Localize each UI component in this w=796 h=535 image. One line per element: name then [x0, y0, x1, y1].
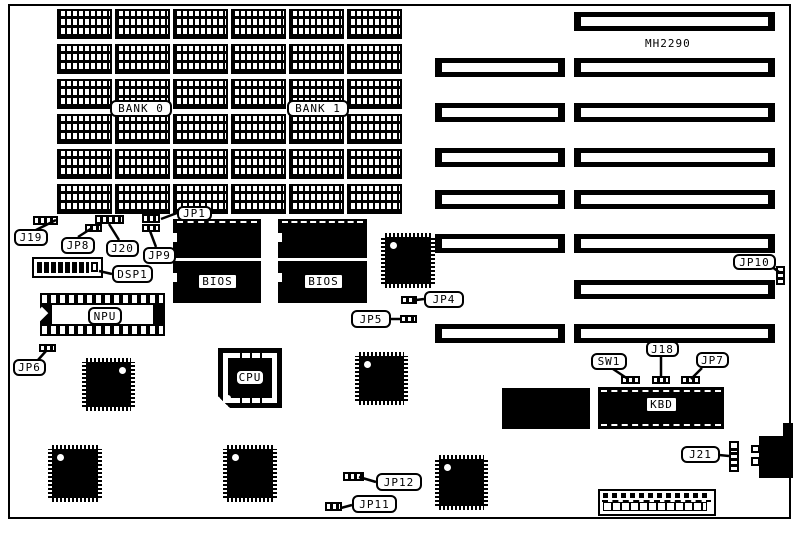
aux-chip — [502, 388, 590, 429]
bios2-label: BIOS — [303, 273, 344, 290]
jp9-label: JP9 — [143, 247, 176, 264]
sw1-label: SW1 — [591, 353, 627, 370]
qfp-chip-2 — [355, 352, 408, 405]
jp11-label: JP11 — [352, 495, 397, 513]
power-connector-pins — [603, 493, 711, 498]
memory-chip — [231, 9, 286, 39]
memory-chip — [289, 149, 344, 179]
memory-chip — [57, 114, 112, 144]
j20-jumper — [95, 215, 124, 224]
jp1-label: JP1 — [177, 206, 212, 221]
expansion-slot-long — [574, 190, 775, 209]
sw1-jumper — [621, 376, 640, 384]
j21-connector — [729, 449, 739, 472]
memory-chip — [115, 9, 170, 39]
jp4-label: JP4 — [424, 291, 464, 308]
memory-chip — [289, 114, 344, 144]
j20-label: J20 — [106, 240, 139, 257]
jp11-jumper — [325, 502, 342, 511]
memory-chip — [115, 44, 170, 74]
memory-chip — [289, 184, 344, 214]
jp5-label: JP5 — [351, 310, 391, 328]
dsp1-label: DSP1 — [112, 265, 153, 283]
dsp1-socket-empty-pin — [91, 262, 98, 272]
memory-chip — [115, 114, 170, 144]
expansion-slot-long — [574, 148, 775, 167]
pin1-notch — [278, 233, 282, 242]
din-tab-1 — [751, 445, 760, 453]
cpu-pin1-dot — [225, 395, 231, 401]
memory-chip — [347, 114, 402, 144]
qfp-pin1-dot — [232, 454, 239, 461]
jp8-jumper — [85, 224, 102, 232]
qfp-pin1-dot — [364, 361, 371, 368]
qfp-chip-6 — [435, 455, 488, 510]
bios-rom-socket-1 — [173, 219, 261, 258]
keyboard-din-connector — [759, 436, 793, 478]
memory-chip — [173, 114, 228, 144]
bank0-label: BANK 0 — [110, 100, 172, 117]
dsp1-socket-pins — [37, 262, 89, 273]
npu-pins-top — [42, 295, 163, 303]
j21-pin1-pad — [729, 441, 739, 450]
memory-chip — [57, 184, 112, 214]
memory-chip — [57, 44, 112, 74]
j18-jumper — [652, 376, 670, 384]
jp4-jumper — [401, 296, 417, 304]
memory-chip — [347, 9, 402, 39]
j19-label: J19 — [14, 229, 48, 246]
memory-chip — [231, 44, 286, 74]
jp6-jumper — [39, 344, 56, 352]
memory-chip — [231, 79, 286, 109]
expansion-slot-long — [574, 58, 775, 77]
expansion-slot-short — [435, 58, 565, 77]
memory-chip — [347, 79, 402, 109]
bios-rom-socket-2 — [278, 219, 367, 258]
memory-chip — [115, 184, 170, 214]
cpu-ticks-bottom — [232, 398, 268, 403]
pin1-notch — [173, 273, 177, 282]
socket-dash — [177, 221, 257, 223]
qfp-chip-5 — [223, 445, 277, 502]
pin1-notch — [173, 233, 177, 242]
jp1-jumper-a — [142, 214, 160, 223]
jp6-label: JP6 — [13, 359, 46, 376]
expansion-slot-long — [574, 280, 775, 299]
cpu-label: CPU — [235, 369, 265, 386]
bios1-label: BIOS — [197, 273, 238, 290]
npu-pins-bottom — [42, 326, 163, 334]
npu-label: NPU — [88, 307, 122, 325]
pin1-notch — [278, 273, 282, 282]
keyboard-din-step — [783, 423, 793, 437]
bank1-label: BANK 1 — [287, 100, 349, 117]
j18-label: J18 — [646, 341, 679, 357]
kbd-label: KBD — [645, 396, 678, 413]
memory-chip — [231, 149, 286, 179]
jp1-jumper-b — [142, 224, 160, 232]
memory-chip — [289, 9, 344, 39]
power-connector — [598, 489, 716, 516]
expansion-slot-short — [435, 190, 565, 209]
jp10-label: JP10 — [733, 254, 776, 270]
connector-notch — [711, 499, 714, 505]
motherboard-diagram: MH2290 BANK 0 BANK 1 BIOS BIOS DSP1 NPU — [0, 0, 796, 535]
j21-label: J21 — [681, 446, 720, 463]
memory-chip — [347, 149, 402, 179]
jp7-jumper — [681, 376, 700, 384]
memory-chip — [231, 184, 286, 214]
qfp-pin1-dot — [119, 367, 126, 374]
model-number-text: MH2290 — [645, 37, 691, 50]
expansion-slot-short — [435, 234, 565, 253]
socket-dash — [282, 221, 363, 223]
expansion-slot-long — [574, 324, 775, 343]
expansion-slot-short — [435, 148, 565, 167]
memory-chip — [57, 79, 112, 109]
power-connector-terminals — [603, 502, 707, 511]
jp10-jumper — [776, 266, 785, 285]
memory-chip — [173, 44, 228, 74]
expansion-slot-short — [435, 103, 565, 122]
jp12-label: JP12 — [376, 473, 422, 491]
memory-chip — [57, 9, 112, 39]
j19-jumper — [33, 216, 58, 225]
memory-chip — [115, 149, 170, 179]
memory-chip — [57, 149, 112, 179]
memory-chip — [289, 44, 344, 74]
jp12-jumper — [343, 472, 364, 481]
qfp-chip-3 — [381, 233, 435, 288]
memory-chip — [347, 184, 402, 214]
memory-chip — [173, 149, 228, 179]
jp7-label: JP7 — [696, 352, 729, 368]
expansion-slot-long — [574, 103, 775, 122]
jp5-jumper — [400, 315, 417, 323]
qfp-chip-4 — [48, 445, 102, 502]
memory-chip — [347, 44, 402, 74]
qfp-pin1-dot — [57, 454, 64, 461]
jp8-label: JP8 — [61, 237, 95, 254]
expansion-slot-short — [435, 324, 565, 343]
memory-chip — [173, 79, 228, 109]
din-tab-2 — [751, 457, 760, 466]
expansion-slot-long — [574, 234, 775, 253]
dsp1-socket — [32, 257, 103, 278]
qfp-pin1-dot — [444, 464, 451, 471]
socket-dash — [601, 424, 721, 426]
memory-chip — [231, 114, 286, 144]
qfp-chip-1 — [82, 358, 135, 411]
qfp-pin1-dot — [390, 242, 397, 249]
socket-dash — [601, 390, 721, 392]
expansion-slot-long — [574, 12, 775, 31]
memory-chip — [173, 9, 228, 39]
